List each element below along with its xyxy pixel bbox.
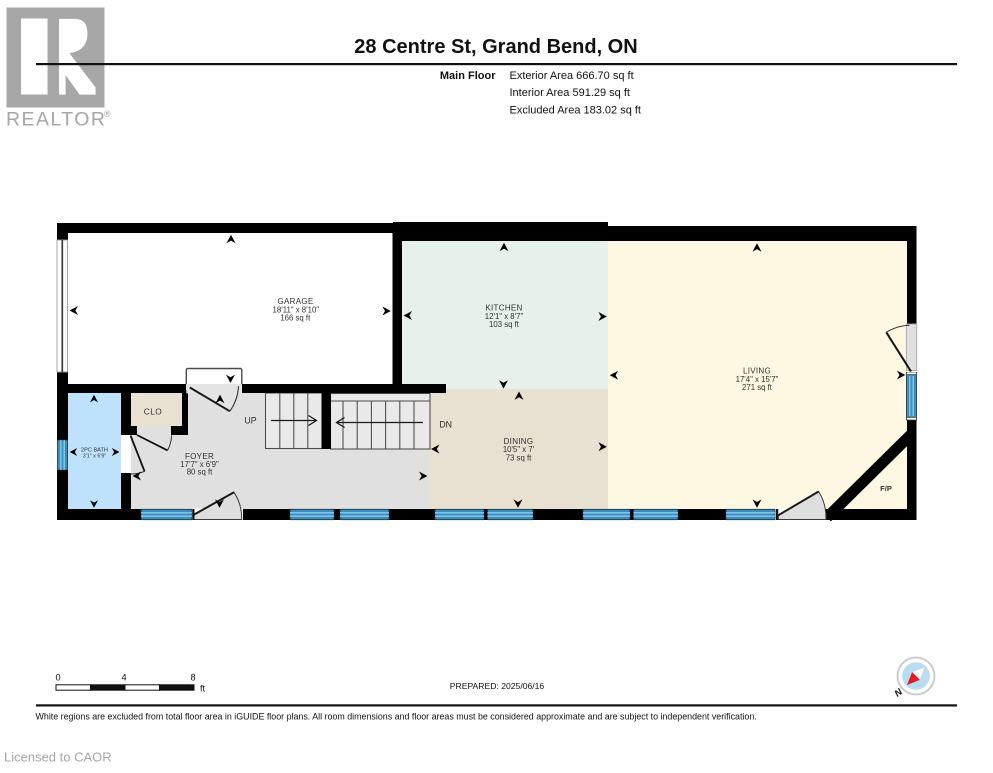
svg-text:UP: UP: [244, 416, 256, 426]
svg-text:ft: ft: [200, 684, 206, 694]
svg-text:F/P: F/P: [880, 484, 892, 493]
svg-text:8: 8: [190, 673, 195, 683]
svg-text:Interior Area 591.29 sq ft: Interior Area 591.29 sq ft: [510, 87, 630, 99]
svg-text:80 sq ft: 80 sq ft: [187, 468, 213, 477]
svg-text:CLO: CLO: [144, 406, 163, 416]
svg-text:Exterior Area 666.70 sq ft: Exterior Area 666.70 sq ft: [510, 70, 634, 82]
svg-text:166 sq ft: 166 sq ft: [280, 313, 311, 322]
svg-text:Excluded Area 183.02 sq ft: Excluded Area 183.02 sq ft: [510, 105, 641, 117]
svg-text:3'1" x 6'9": 3'1" x 6'9": [83, 453, 107, 459]
svg-text:White regions are excluded fro: White regions are excluded from total fl…: [36, 712, 757, 722]
svg-text:REALTOR: REALTOR: [6, 109, 106, 131]
svg-text:4: 4: [121, 673, 126, 683]
svg-text:271 sq ft: 271 sq ft: [742, 383, 773, 392]
svg-text:PREPARED: 2025/06/16: PREPARED: 2025/06/16: [450, 681, 545, 691]
svg-text:0: 0: [55, 673, 60, 683]
svg-text:28 Centre St, Grand Bend, ON: 28 Centre St, Grand Bend, ON: [354, 36, 637, 58]
svg-text:Licensed to CAOR: Licensed to CAOR: [4, 750, 112, 765]
svg-text:®: ®: [104, 109, 111, 119]
svg-text:DN: DN: [439, 420, 452, 430]
svg-text:103 sq ft: 103 sq ft: [489, 320, 520, 329]
svg-text:73 sq ft: 73 sq ft: [506, 453, 532, 462]
svg-text:Main Floor: Main Floor: [440, 70, 496, 82]
